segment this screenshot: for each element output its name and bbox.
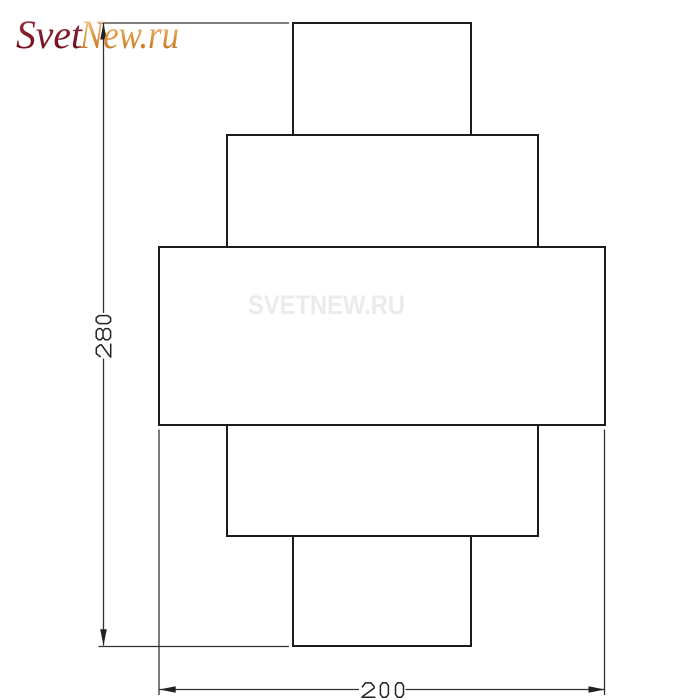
svg-text:New.ru: New.ru	[79, 12, 179, 57]
svg-text:Svet: Svet	[16, 12, 83, 57]
svg-text:SVETNEW.RU: SVETNEW.RU	[248, 290, 405, 320]
